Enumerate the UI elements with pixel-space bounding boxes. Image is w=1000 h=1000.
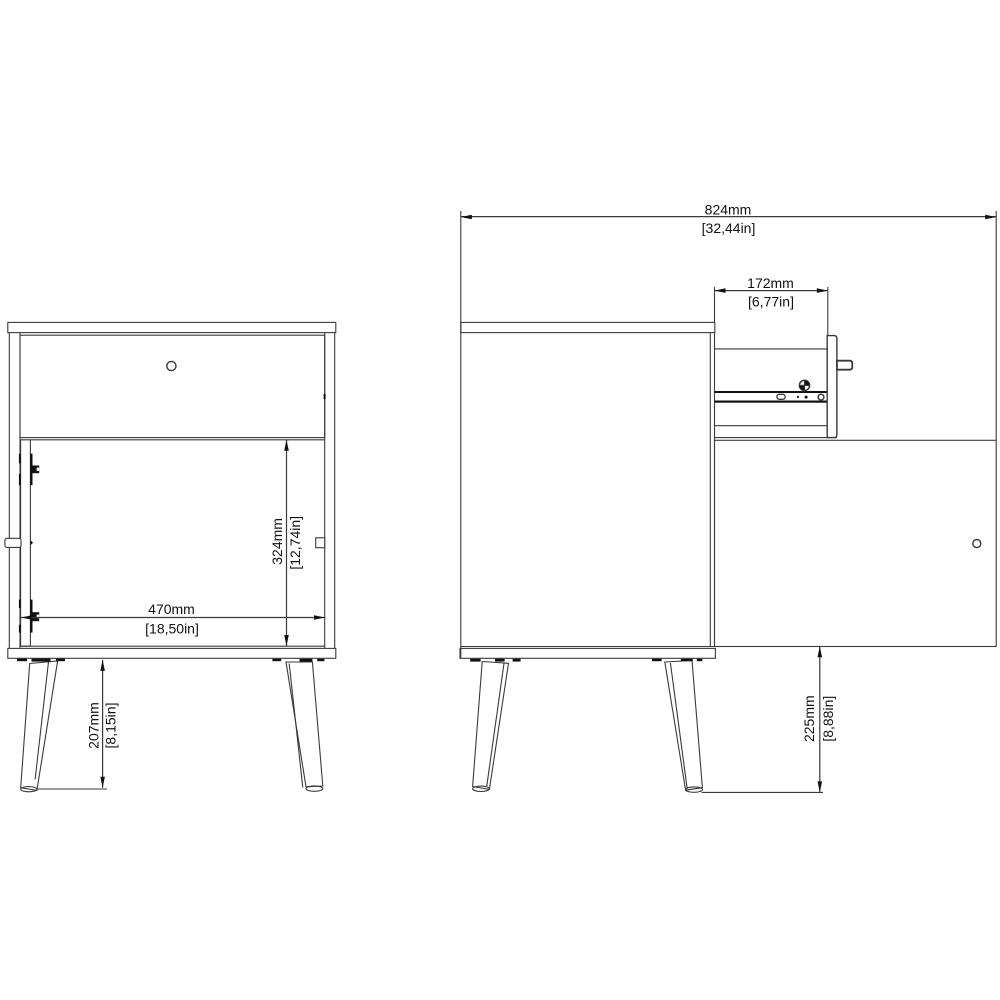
svg-text:[6,77in]: [6,77in] — [748, 294, 794, 310]
svg-text:207mm: 207mm — [86, 702, 102, 749]
svg-text:[18,50in]: [18,50in] — [145, 620, 199, 636]
svg-text:824mm: 824mm — [705, 201, 752, 217]
svg-text:324mm: 324mm — [269, 518, 285, 565]
svg-text:[8,15in]: [8,15in] — [103, 703, 119, 749]
svg-text:[8,88in]: [8,88in] — [820, 696, 836, 742]
svg-text:[32,44in]: [32,44in] — [702, 220, 756, 236]
svg-text:[12,74in]: [12,74in] — [287, 516, 303, 570]
svg-text:225mm: 225mm — [801, 695, 817, 742]
svg-text:470mm: 470mm — [148, 601, 195, 617]
svg-text:172mm: 172mm — [747, 275, 794, 291]
